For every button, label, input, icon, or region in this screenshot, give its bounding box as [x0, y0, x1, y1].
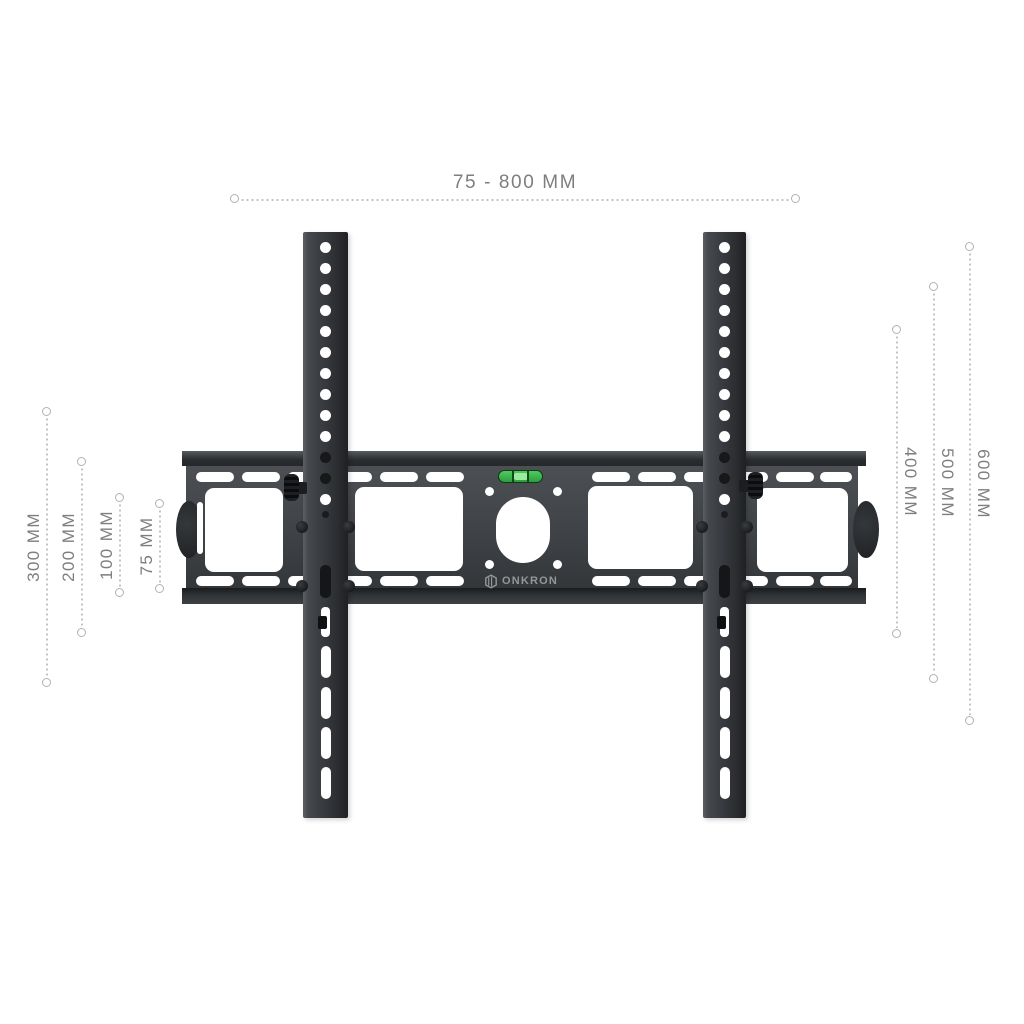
plate-cutout-1	[205, 488, 283, 572]
plate-slot	[820, 576, 852, 586]
plate-edge-slot	[197, 502, 203, 554]
tilt-knob-left	[284, 474, 299, 501]
left-rail-slot	[321, 767, 331, 799]
left-rail-hole	[320, 326, 331, 337]
right-rail-hole	[719, 326, 730, 337]
left-rail-hole	[320, 410, 331, 421]
plate-cutout-3	[588, 486, 693, 569]
right-rail-hole	[719, 389, 730, 400]
plate-slot	[196, 576, 234, 586]
right-rail-screw	[741, 521, 753, 533]
left-rail-hole	[320, 305, 331, 316]
plate-cutout-2	[355, 487, 463, 571]
right-rail-slot	[719, 565, 730, 598]
right-rail-hole	[719, 473, 730, 484]
plate-slot	[380, 472, 418, 482]
left-rail-hole	[320, 368, 331, 379]
left-rail-hole	[320, 347, 331, 358]
mount-hole	[485, 487, 494, 496]
spring-clip-right	[853, 501, 879, 558]
left-rail-slot	[321, 687, 331, 719]
right-rail-screw	[696, 580, 708, 592]
left-rail-hole	[320, 473, 331, 484]
left-rail-slot	[321, 646, 331, 678]
left-rail-slot	[321, 727, 331, 759]
right-rail-hole	[719, 410, 730, 421]
wall-plate-top-flange	[182, 451, 866, 466]
left-rail-hole	[320, 389, 331, 400]
level-tick	[527, 471, 529, 482]
left-rail-hole	[320, 494, 331, 505]
mount-hole	[553, 560, 562, 569]
right-rail-hole	[719, 242, 730, 253]
right-rail-slot	[720, 727, 730, 759]
left-rail-hole	[320, 242, 331, 253]
right-rail-hole	[719, 494, 730, 505]
right-rail-hole	[719, 284, 730, 295]
left-rail-hole	[320, 263, 331, 274]
onkron-cube-icon	[484, 574, 498, 589]
level-tick	[512, 471, 514, 482]
mount-hole	[553, 487, 562, 496]
brand-label: ONKRON	[502, 575, 558, 587]
right-rail-hole	[719, 347, 730, 358]
right-rail-hole	[719, 368, 730, 379]
right-rail-slot	[720, 767, 730, 799]
left-rail-screw	[296, 580, 308, 592]
plate-slot	[776, 576, 814, 586]
right-rail-screw	[696, 521, 708, 533]
plate-slot	[776, 472, 814, 482]
plate-slot	[242, 576, 280, 586]
plate-slot	[242, 472, 280, 482]
plate-slot	[426, 472, 464, 482]
right-rail-hook	[717, 616, 726, 629]
left-rail-slot	[320, 565, 331, 598]
plate-slot	[196, 472, 234, 482]
left-rail-hook	[318, 616, 327, 629]
left-rail-screw	[296, 521, 308, 533]
tv-wall-mount: ONKRON	[0, 0, 1024, 1024]
left-rail-hole	[320, 452, 331, 463]
plate-slot	[380, 576, 418, 586]
right-rail-hole	[719, 263, 730, 274]
bubble-level	[498, 470, 543, 483]
right-rail-slot	[720, 646, 730, 678]
right-rail-slot	[720, 687, 730, 719]
plate-slot	[820, 472, 852, 482]
product-diagram: 75 - 800 MM 300 MM 200 MM 100 MM 75 MM 4…	[0, 0, 1024, 1024]
right-rail-hole	[719, 305, 730, 316]
plate-slot	[638, 576, 676, 586]
left-rail-screw	[343, 580, 355, 592]
cable-opening	[496, 497, 550, 563]
plate-slot	[638, 472, 676, 482]
plate-slot	[592, 576, 630, 586]
right-rail-hole	[719, 431, 730, 442]
right-rail-hole	[719, 452, 730, 463]
left-rail-screw	[343, 521, 355, 533]
right-rail-screw	[741, 580, 753, 592]
left-rail-hole	[320, 284, 331, 295]
right-rail-hole	[721, 511, 728, 518]
tilt-knob-right	[748, 472, 763, 499]
onkron-logo: ONKRON	[480, 570, 562, 592]
plate-cutout-4	[757, 488, 848, 572]
plate-slot	[592, 472, 630, 482]
left-rail-hole	[320, 431, 331, 442]
left-rail-hole	[322, 511, 329, 518]
plate-slot	[426, 576, 464, 586]
mount-hole	[485, 560, 494, 569]
